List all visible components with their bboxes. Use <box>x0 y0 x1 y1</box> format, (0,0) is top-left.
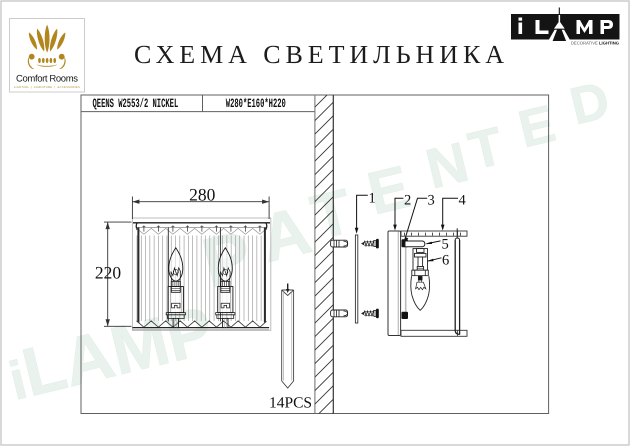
svg-text:2: 2 <box>404 193 411 209</box>
svg-text:E: E <box>513 95 560 160</box>
svg-text:A: A <box>253 193 318 277</box>
svg-text:T: T <box>463 117 508 182</box>
svg-text:iLAMP: iLAMP <box>1 292 221 415</box>
svg-text:D: D <box>565 71 615 136</box>
svg-text:14PCS: 14PCS <box>269 395 312 412</box>
svg-text:5: 5 <box>442 237 449 253</box>
svg-text:N: N <box>420 130 474 201</box>
svg-text:W280*E160*H220: W280*E160*H220 <box>226 96 286 111</box>
svg-text:СХЕМА СВЕТИЛЬНИКА: СХЕМА СВЕТИЛЬНИКА <box>134 40 504 69</box>
svg-text:6: 6 <box>442 253 449 269</box>
svg-text:LIGHTING | FURNITURE | ACC: LIGHTING | FURNITURE | ACCESSORIES <box>14 86 80 89</box>
svg-text:4: 4 <box>459 193 467 209</box>
svg-text:DECORATIVE LIGHTING: DECORATIVE LIGHTING <box>571 41 619 46</box>
svg-text:QEENS W2553/2 NICKEL: QEENS W2553/2 NICKEL <box>93 96 179 111</box>
svg-text:1: 1 <box>369 191 376 207</box>
svg-text:280: 280 <box>189 185 216 205</box>
svg-text:3: 3 <box>428 193 435 209</box>
svg-text:220: 220 <box>95 262 122 282</box>
svg-text:Comfort Rooms: Comfort Rooms <box>16 74 78 85</box>
